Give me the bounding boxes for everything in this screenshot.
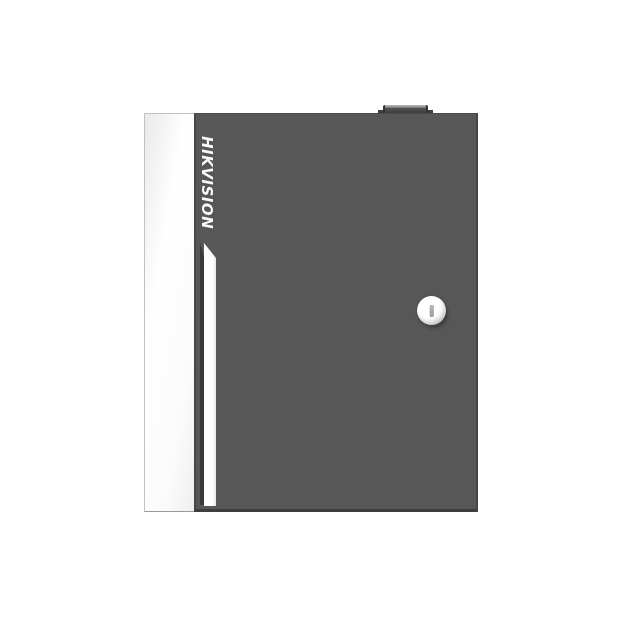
cam-lock [417,296,446,325]
brand-logo: HIKVISION [197,136,216,229]
product-photo: HIKVISION [0,0,620,620]
door-accent-stripe [204,243,216,506]
door-stripe-groove [200,243,204,505]
keyhole-icon [429,305,434,317]
access-control-enclosure: HIKVISION [143,103,479,512]
enclosure-side-panel [144,113,194,512]
